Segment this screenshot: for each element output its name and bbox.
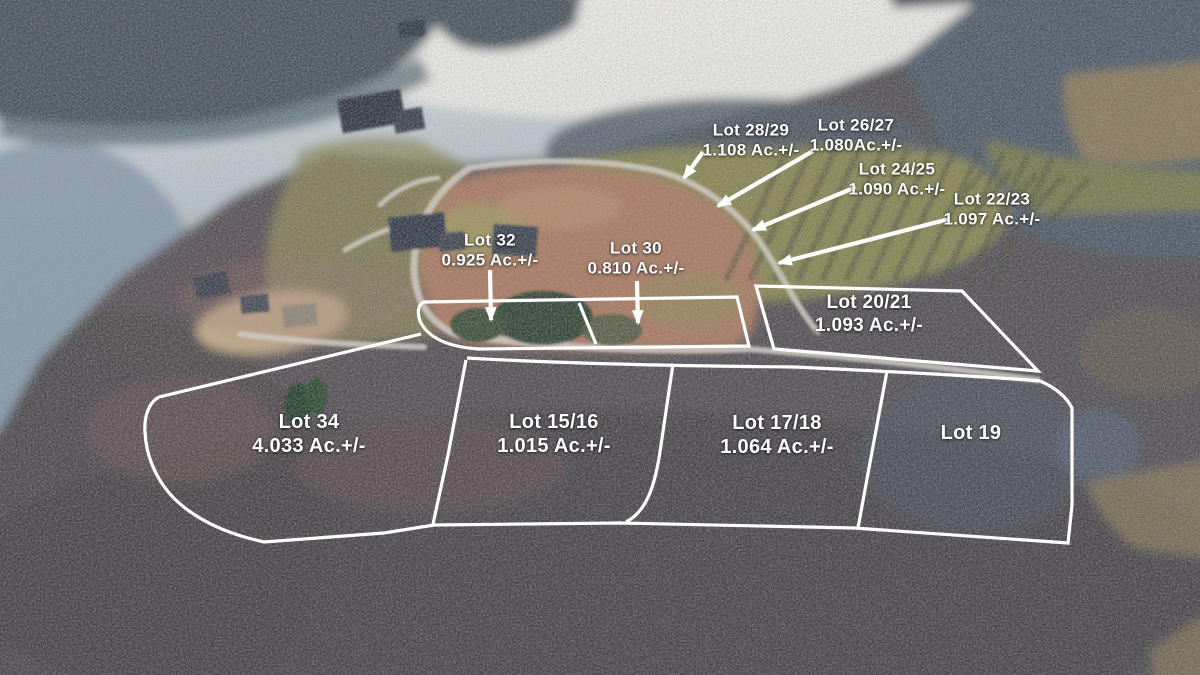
lot-name: Lot 32 xyxy=(441,231,538,251)
lot-22-23-label: Lot 22/23 1.097 Ac.+/- xyxy=(943,190,1040,231)
lot-acreage: 0.925 Ac.+/- xyxy=(441,251,538,271)
lot-name: Lot 24/25 xyxy=(848,160,945,180)
lot-name: Lot 19 xyxy=(941,421,1002,445)
lot-acreage: 0.810 Ac.+/- xyxy=(587,259,684,279)
lot-acreage: 1.080Ac.+/- xyxy=(810,136,903,156)
lot-19-label: Lot 19 xyxy=(941,421,1002,445)
lot-name: Lot 26/27 xyxy=(810,116,903,136)
lot-name: Lot 34 xyxy=(252,410,365,434)
lot-32-arrow xyxy=(490,270,491,320)
lot-acreage: 1.108 Ac.+/- xyxy=(702,141,799,161)
lot-acreage: 1.015 Ac.+/- xyxy=(497,434,610,458)
lot-32-label: Lot 32 0.925 Ac.+/- xyxy=(441,231,538,272)
lot-name: Lot 15/16 xyxy=(497,410,610,434)
lot-name: Lot 20/21 xyxy=(815,292,923,315)
lot-15-16-label: Lot 15/16 1.015 Ac.+/- xyxy=(497,410,610,458)
lot-acreage: 4.033 Ac.+/- xyxy=(252,434,365,458)
lot-30-label: Lot 30 0.810 Ac.+/- xyxy=(587,239,684,280)
lot-acreage: 1.090 Ac.+/- xyxy=(848,180,945,200)
lot-26-27-label: Lot 26/27 1.080Ac.+/- xyxy=(810,116,903,157)
lot-34-label: Lot 34 4.033 Ac.+/- xyxy=(252,410,365,458)
lot-acreage: 1.097 Ac.+/- xyxy=(943,210,1040,230)
lot-24-25-label: Lot 24/25 1.090 Ac.+/- xyxy=(848,160,945,201)
lot-name: Lot 17/18 xyxy=(720,411,833,435)
aerial-lot-map: Lot 28/29 1.108 Ac.+/- Lot 26/27 1.080Ac… xyxy=(0,0,1200,675)
lot-name: Lot 30 xyxy=(587,239,684,259)
lot-acreage: 1.093 Ac.+/- xyxy=(815,315,923,338)
lot-17-18-label: Lot 17/18 1.064 Ac.+/- xyxy=(720,411,833,459)
lot-name: Lot 22/23 xyxy=(943,190,1040,210)
aerial-photo-background xyxy=(0,0,1200,675)
lot-28-29-label: Lot 28/29 1.108 Ac.+/- xyxy=(702,121,799,162)
lot-name: Lot 28/29 xyxy=(702,121,799,141)
lot-acreage: 1.064 Ac.+/- xyxy=(720,435,833,459)
lot-30-arrow xyxy=(637,281,638,323)
lot-20-21-label: Lot 20/21 1.093 Ac.+/- xyxy=(815,292,923,338)
